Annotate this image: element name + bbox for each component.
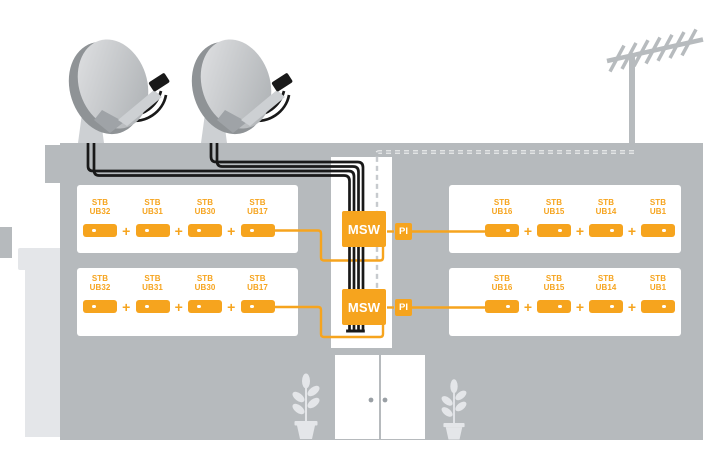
plus-separator: +: [571, 300, 589, 313]
plus-separator: +: [222, 224, 241, 237]
multiswitch-bottom: MSW: [342, 289, 386, 325]
stb-label: STBUB1: [650, 198, 666, 216]
stb-unit: STBUB16: [485, 198, 519, 237]
plus-separator: +: [623, 300, 641, 313]
stb-unit: STBUB14: [589, 198, 623, 237]
power-inserter-bottom: PI: [395, 299, 412, 316]
door-handle-right-icon: [383, 398, 388, 403]
satellite-dish-right-icon: [180, 30, 293, 144]
stb-indicator-dot: [506, 229, 510, 232]
stb-box: [641, 300, 675, 313]
stb-indicator-dot: [506, 305, 510, 308]
stb-indicator-dot: [197, 229, 201, 232]
stb-indicator-dot: [558, 229, 562, 232]
plus-separator: +: [519, 224, 537, 237]
entrance-door-right: [381, 355, 425, 439]
power-inserter-top: PI: [395, 223, 412, 240]
stb-unit: STBUB31: [136, 274, 170, 313]
cable-terminator-icon: [360, 330, 365, 333]
stb-unit: STBUB16: [485, 274, 519, 313]
plus-separator: +: [170, 300, 189, 313]
stb-box: [641, 224, 675, 237]
stb-box: [485, 224, 519, 237]
sat-distribution-diagram: MSW PI MSW PI STBUB32 + STBUB31 + STBUB3…: [0, 0, 716, 456]
plus-separator: +: [117, 224, 136, 237]
stb-indicator-dot: [92, 305, 96, 308]
stb-unit: STBUB32: [83, 198, 117, 237]
stb-label: STBUB17: [247, 198, 268, 216]
stb-unit: STBUB31: [136, 198, 170, 237]
stb-box: [188, 224, 222, 237]
cable-terminator-icon: [346, 330, 351, 333]
stb-unit: STBUB15: [537, 274, 571, 313]
stb-unit: STBUB1: [641, 274, 675, 313]
stb-label: STBUB15: [544, 198, 565, 216]
stb-unit: STBUB15: [537, 198, 571, 237]
multiswitch-top: MSW: [342, 211, 386, 247]
stb-box: [537, 300, 571, 313]
stb-unit: STBUB30: [188, 198, 222, 237]
stb-label: STBUB30: [195, 274, 216, 292]
stb-indicator-dot: [662, 229, 666, 232]
terrestrial-antenna-icon: [607, 29, 703, 143]
plus-separator: +: [222, 300, 241, 313]
stb-row-top-right: STBUB16 + STBUB15 + STBUB14 + STBUB1: [485, 198, 675, 237]
cable-terminator-icon: [351, 330, 356, 333]
stb-box: [83, 224, 117, 237]
stb-unit: STBUB30: [188, 274, 222, 313]
stb-indicator-dot: [145, 305, 149, 308]
stb-indicator-dot: [662, 305, 666, 308]
entrance-door-left: [335, 355, 379, 439]
stb-indicator-dot: [250, 305, 254, 308]
stb-unit: STBUB32: [83, 274, 117, 313]
stb-label: STBUB16: [492, 274, 513, 292]
stb-box: [241, 300, 275, 313]
stb-indicator-dot: [250, 229, 254, 232]
stb-label: STBUB32: [90, 198, 111, 216]
stb-box: [83, 300, 117, 313]
stb-row-bottom-right: STBUB16 + STBUB15 + STBUB14 + STBUB1: [485, 274, 675, 313]
stb-indicator-dot: [610, 305, 614, 308]
stb-label: STBUB16: [492, 198, 513, 216]
stb-box: [537, 224, 571, 237]
plus-separator: +: [170, 224, 189, 237]
stb-box: [188, 300, 222, 313]
stb-indicator-dot: [92, 229, 96, 232]
stb-indicator-dot: [197, 305, 201, 308]
stb-indicator-dot: [145, 229, 149, 232]
stb-box: [136, 224, 170, 237]
plus-separator: +: [117, 300, 136, 313]
stb-box: [136, 300, 170, 313]
stb-indicator-dot: [558, 305, 562, 308]
annex-building: [18, 248, 62, 437]
stb-indicator-dot: [610, 229, 614, 232]
stb-label: STBUB14: [596, 274, 617, 292]
stb-box: [589, 300, 623, 313]
stb-unit: STBUB17: [241, 198, 275, 237]
stb-row-top-left: STBUB32 + STBUB31 + STBUB30 + STBUB17: [83, 198, 275, 237]
cable-terminator-icon: [355, 330, 360, 333]
neighbor-building-fragment: [0, 227, 12, 258]
stb-unit: STBUB17: [241, 274, 275, 313]
satellite-dish-left-icon: [57, 30, 170, 144]
stb-label: STBUB14: [596, 198, 617, 216]
plus-separator: +: [623, 224, 641, 237]
stb-box: [241, 224, 275, 237]
stb-label: STBUB31: [142, 274, 163, 292]
door-handle-left-icon: [369, 398, 374, 403]
stb-label: STBUB1: [650, 274, 666, 292]
stb-label: STBUB17: [247, 274, 268, 292]
stb-row-bottom-left: STBUB32 + STBUB31 + STBUB30 + STBUB17: [83, 274, 275, 313]
stb-box: [589, 224, 623, 237]
stb-label: STBUB30: [195, 198, 216, 216]
plus-separator: +: [519, 300, 537, 313]
stb-label: STBUB32: [90, 274, 111, 292]
stb-label: STBUB31: [142, 198, 163, 216]
plus-separator: +: [571, 224, 589, 237]
stb-box: [485, 300, 519, 313]
stb-label: STBUB15: [544, 274, 565, 292]
stb-unit: STBUB1: [641, 198, 675, 237]
stb-unit: STBUB14: [589, 274, 623, 313]
